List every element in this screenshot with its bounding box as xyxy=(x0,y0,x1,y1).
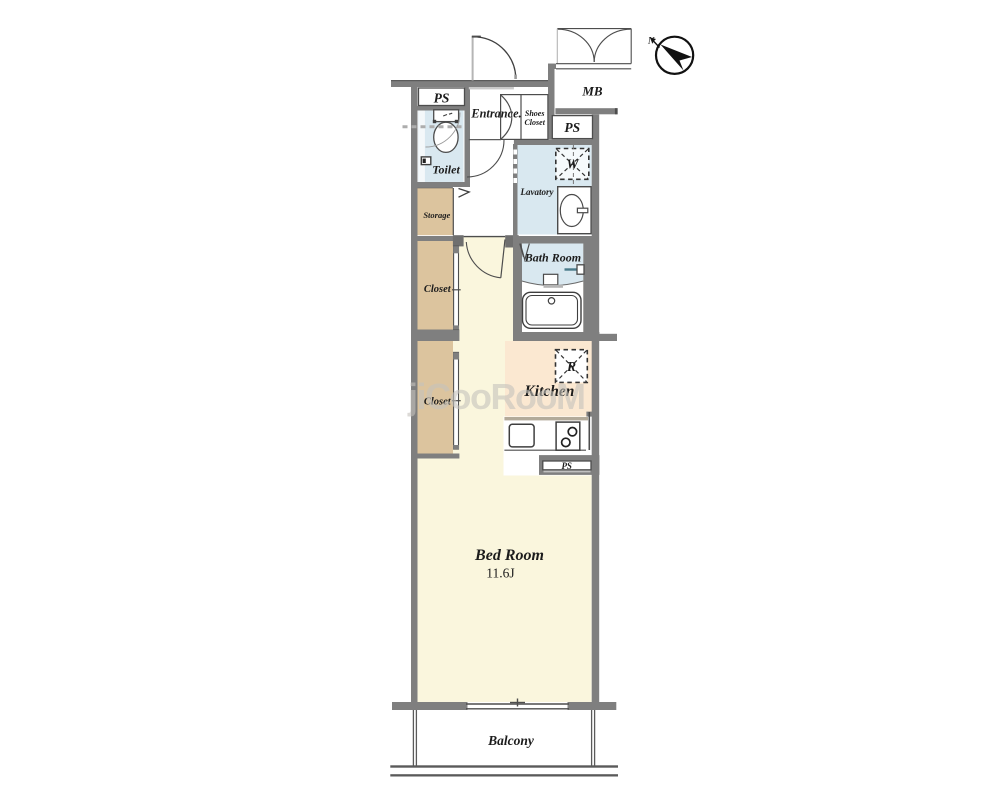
svg-text:N: N xyxy=(647,36,655,46)
svg-text:R: R xyxy=(566,359,576,374)
svg-text:jiCooRooM: jiCooRooM xyxy=(407,376,584,417)
svg-text:Balcony: Balcony xyxy=(487,733,535,748)
svg-text:11.6J: 11.6J xyxy=(486,566,514,581)
svg-text:PS: PS xyxy=(564,120,580,135)
svg-text:Toilet: Toilet xyxy=(432,163,460,177)
svg-text:Shoes: Shoes xyxy=(525,109,545,118)
svg-text:Closet: Closet xyxy=(524,118,545,127)
svg-text:MB: MB xyxy=(581,84,603,99)
svg-text:Lavatory: Lavatory xyxy=(520,187,555,197)
svg-text:Entrance.: Entrance. xyxy=(470,107,521,121)
svg-text:PS: PS xyxy=(434,91,450,106)
svg-text:Bath Room: Bath Room xyxy=(524,250,581,264)
svg-text:W: W xyxy=(566,157,579,172)
svg-text:Bed Room: Bed Room xyxy=(474,547,544,564)
svg-text:Storage: Storage xyxy=(423,210,450,220)
svg-text:PS: PS xyxy=(561,461,572,471)
svg-text:Closet: Closet xyxy=(424,284,452,295)
